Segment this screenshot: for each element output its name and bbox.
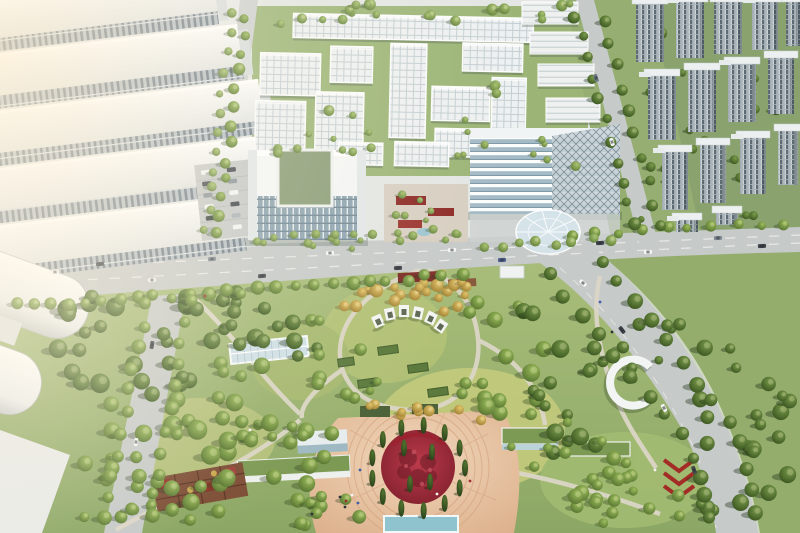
- scene-canvas: [0, 0, 800, 533]
- atmosphere-haze: [0, 0, 800, 533]
- aerial-rendering: [0, 0, 800, 533]
